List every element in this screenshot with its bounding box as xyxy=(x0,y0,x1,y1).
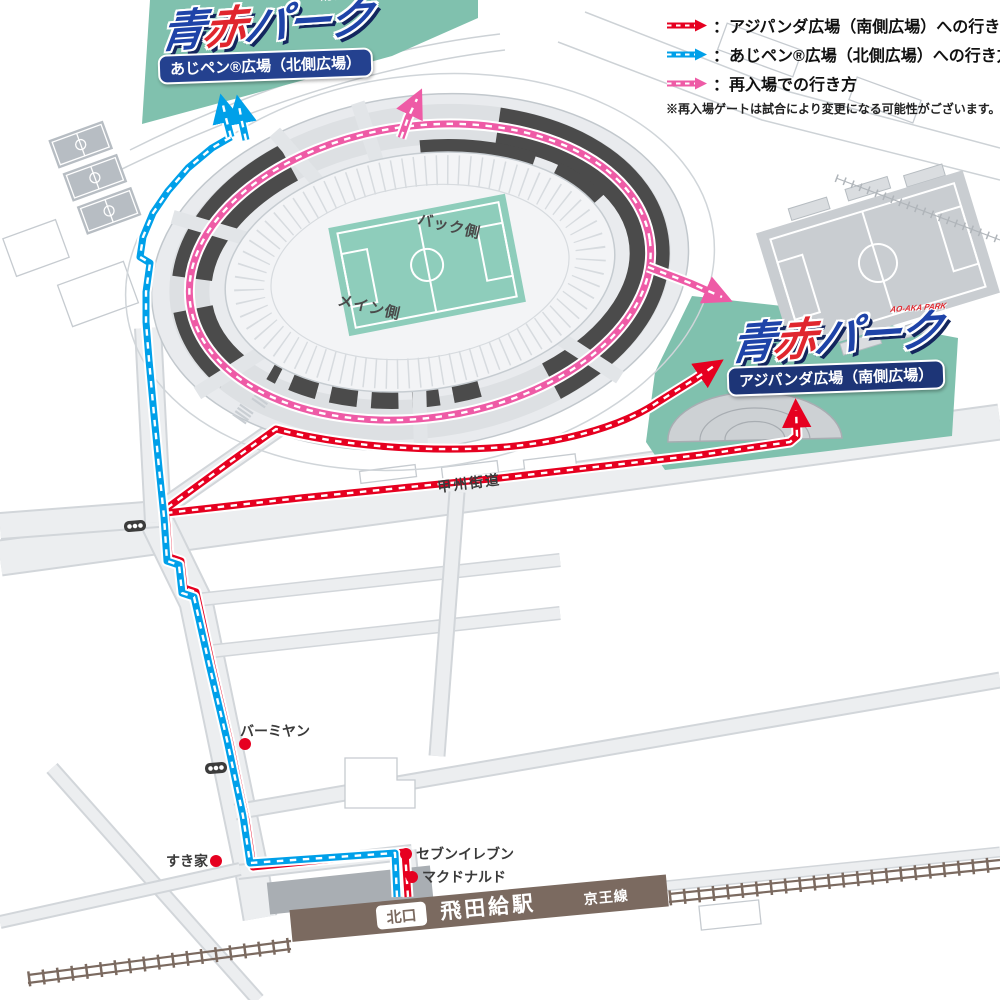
railway-left xyxy=(28,941,291,983)
legend-label: ：あじペン®広場（北側広場）への行き方 xyxy=(713,42,1000,66)
basketball-courts xyxy=(48,119,141,236)
logo-text-suffix: パーク xyxy=(812,305,945,363)
red-dashed-arrow-icon xyxy=(666,19,708,32)
route-map-page: バック側 メイン側 北口 飛田給駅 京王線 xyxy=(0,0,1000,1000)
aoaka-park-logo-north: 青赤パーク AO-AKA PARK あじペン®広場（北側広場） xyxy=(146,4,386,81)
north-exit-label: 北口 xyxy=(386,907,417,927)
landmark-bamiyan: バーミヤン xyxy=(239,723,310,750)
north-plaza-badge: あじペン®広場（北側広場） xyxy=(158,47,374,84)
legend-label: ：再入場での行き方 xyxy=(713,71,857,95)
landmark-dot xyxy=(400,848,412,860)
logo-text-suffix: パーク xyxy=(242,0,375,52)
legend-item-south-plaza: ：アジパンダ広場（南側広場）への行き方 xyxy=(666,13,1000,37)
traffic-light-icon xyxy=(124,520,147,533)
traffic-light-icon xyxy=(205,762,228,775)
legend-item-reentry: ：再入場での行き方 xyxy=(666,71,1000,95)
route-map-canvas: バック側 メイン側 北口 飛田給駅 京王線 xyxy=(0,0,1000,1000)
legend-item-north-plaza: ：あじペン®広場（北側広場）への行き方 xyxy=(666,42,1000,66)
legend-note: ※再入場ゲートは試合により変更になる可能性がございます。 xyxy=(666,100,1000,117)
landmark-dot xyxy=(210,855,222,867)
aoaka-park-wordmark: 青赤パーク AO-AKA PARK xyxy=(728,308,944,367)
south-plaza-badge: アジパンダ広場（南側広場） xyxy=(726,359,945,397)
blue-dashed-arrow-icon xyxy=(666,48,708,61)
landmark-label: セブンイレブン xyxy=(416,846,514,862)
landmark-label: マクドナルド xyxy=(422,869,506,885)
pink-dashed-arrow-icon xyxy=(666,77,708,90)
landmark-label: すき家 xyxy=(166,853,209,869)
landmark-label: バーミヤン xyxy=(240,723,310,739)
aoaka-park-logo-south: 青赤パーク AO-AKA PARK アジパンダ広場（南側広場） xyxy=(716,316,956,393)
aoaka-park-wordmark: 青赤パーク AO-AKA PARK xyxy=(158,0,374,56)
landmark-dot xyxy=(239,738,251,750)
legend: ：アジパンダ広場（南側広場）への行き方 ：あじペン®広場（北側広場）への行き方 … xyxy=(666,13,1000,117)
legend-label: ：アジパンダ広場（南側広場）への行き方 xyxy=(713,13,1000,37)
landmark-sukiya: すき家 xyxy=(166,853,222,869)
landmark-seven-eleven: セブンイレブン xyxy=(400,846,514,862)
landmark-dot xyxy=(406,871,418,883)
